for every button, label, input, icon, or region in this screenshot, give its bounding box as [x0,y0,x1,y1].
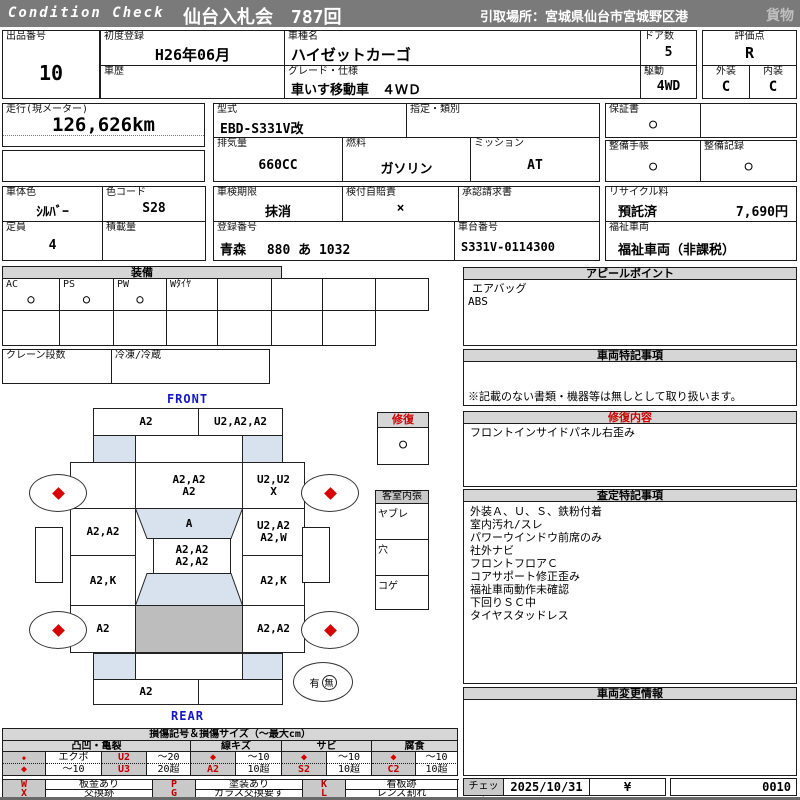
auction-title: 仙台入札会 787回 [183,3,342,29]
damage-legend: 損傷記号＆損傷サイズ（～最大cm） 凸凹・亀裂 線キズ サビ 腐食 ◆ エクボ … [2,728,458,797]
transmission: AT [471,158,599,173]
displacement-cell: 排気量 660CC [213,137,343,182]
mileage: 126,626km [3,114,204,136]
panel-front-corner-right [242,435,283,463]
title-bar: Condition Check 仙台入札会 787回 引取場所：宮城県仙台市宮城… [0,0,800,27]
model-name: ハイゼットカーゴ [291,44,411,65]
panel-rear-bumper-left: A2 [93,679,199,705]
chassis-number-cell: 車台番号 S331V-0114300 [454,221,600,261]
service-book-mark: ○ [606,159,700,174]
equipment-pw-mark: ○ [114,292,166,306]
panel-rear-corner-right [242,653,283,680]
rear-glass-shape [135,573,243,606]
warranty-cell: 保証書 ○ [605,103,701,138]
grade-cell: グレード・仕様 車いす移動車 ４ＷＤ [284,65,641,99]
check-code: 0010 [762,780,791,794]
welfare-cell: 福祉車両 福祉車両（非課税） [605,221,797,261]
equipment-empty-cell [2,310,60,346]
model-code-cell: 型式 EBD-S331V改 [213,103,407,138]
load-cell: 積載量 [102,221,206,261]
auction-sheet: Condition Check 仙台入札会 787回 引取場所：宮城県仙台市宮城… [0,0,800,800]
equipment-empty-cell [113,310,167,346]
equipment-ac-cell: AC ○ [2,278,60,311]
check-mark: ¥ [590,780,665,794]
panel-hood: A2,A2 A2 [135,462,243,509]
pickup-location: 引取場所：宮城県仙台市宮城野区港 [480,6,688,25]
color-code-cell: 色コード S28 [102,186,206,222]
assessment-line: パワーウインドウ前席のみ [470,531,602,544]
assessment-line: 室内汚れ/スレ [470,518,543,531]
lot-number-cell: 出品番号 10 [2,30,100,99]
wheel-rear-right [301,611,359,649]
damage-diamond-icon [52,487,65,500]
insurance-cell: 検付自賠責 × [342,186,459,222]
legend-group-corrosion: 腐食 [372,741,458,752]
equipment-empty-cell [271,278,323,311]
panel-door-left: A2,A2 [70,508,136,556]
spare-absent-circled: 無 [322,675,337,690]
panel-rear-bumper-right [198,679,283,705]
panel-quarter-left: A2,K [70,555,136,606]
chassis-number: S331V-0114300 [461,240,555,254]
check-date-cell: 2025/10/31 [503,778,590,796]
service-record-mark: ○ [701,159,796,174]
recycle-fee-cell: リサイクル料 預託済 7,690円 [605,186,797,222]
equipment-empty-cell [375,278,429,311]
shaken: 抹消 [214,201,342,220]
panel-front-corner-left [93,435,136,463]
appeal-line: エアバッグ [472,282,527,295]
assessment-line: 外装Ａ、Ｕ、Ｓ、鉄粉付着 [470,505,602,518]
legend-group-dent: 凸凹・亀裂 [3,741,191,752]
warranty-empty-cell [700,103,797,138]
front-label: FRONT [70,392,305,406]
color-code: S28 [103,201,205,216]
spare-present-label: 有 [310,675,320,690]
equipment-empty-cell [271,310,323,346]
first-registration-cell: 初度登録 H26年06月 [100,30,285,66]
brand-logo: Condition Check [8,5,164,21]
diamond-icon: ◆ [191,752,236,764]
body-color-cell: 車体色 ｼﾙﾊﾞｰ [2,186,103,222]
panel-quarter-right: A2,K [242,555,305,606]
small-diamond-icon: ◆ [3,752,46,764]
panel-roof: A2,A2 A2,A2 [153,538,231,574]
recycle-status: 預託済 [618,201,657,220]
panel-windshield: A [135,508,243,539]
rear-label: REAR [70,709,305,723]
welfare: 福祉車両（非課税） [618,239,735,258]
appeal-box: エアバッグ ABS [463,279,797,346]
equipment-wtire-cell: Wﾀｲﾔ [166,278,218,311]
assessment-line: 下回りＳＣ中 [470,596,536,609]
appeal-line: ABS [468,295,488,308]
assessment-line: タイヤスタッドレス [470,609,569,622]
repair-flag-box: 修復 ○ [377,412,429,465]
recycle-fee: 7,690円 [736,201,788,220]
equipment-empty-cell [217,278,272,311]
capacity: 4 [3,238,102,253]
model-code: EBD-S331V改 [220,118,303,137]
doors: 5 [641,45,696,60]
registration-number-cell: 登録番号 青森 880 あ 1032 [213,221,455,261]
drive: 4WD [641,79,696,94]
interior-grade-cell: 内装 C [749,65,797,99]
panel-rear-corner-left [93,653,136,680]
exterior-grade-cell: 外装 C [702,65,750,99]
equipment-ac-mark: ○ [3,292,59,306]
score-cell: 評価点 R [702,30,797,66]
change-info-box [463,699,797,776]
crane-cell: クレーン段数 [2,349,112,384]
panel-front-bumper-left: A2 [93,408,199,436]
capacity-cell: 定員 4 [2,221,103,261]
fuel-cell: 燃料 ガソリン [342,137,471,182]
mileage-cell: 走行(現メーター) 126,626km [2,103,205,147]
shaken-cell: 車検期限 抹消 [213,186,343,222]
damage-diamond-icon [52,624,65,637]
repair-info-line: フロントインサイドパネル右歪み [470,426,635,439]
side-rail-left [35,527,63,583]
service-record-cell: 整備記録 ○ [700,140,797,182]
service-book-cell: 整備手帳 ○ [605,140,701,182]
equipment-pw-cell: PW ○ [113,278,167,311]
warranty-mark: ○ [606,117,700,132]
fuel: ガソリン [343,158,470,177]
wheel-front-right [301,474,359,512]
damage-diamond-icon [324,487,337,500]
panel-door-right: U2,A2 A2,W [242,508,305,556]
diamond-icon: ◆ [282,752,327,764]
panel-cargo-floor [135,605,243,653]
equipment-empty-cell [322,278,376,311]
interior-grade: C [750,79,796,95]
equipment-ps-cell: PS ○ [59,278,114,311]
assessment-line: 社外ナビ [470,544,514,557]
model-name-cell: 車種名 ハイゼットカーゴ [284,30,641,66]
vehicle-category: 貨物 [766,5,794,25]
grade: 車いす移動車 ４ＷＤ [291,79,421,98]
class-cell: 指定・類別 [406,103,600,138]
equipment-empty-cell [166,310,218,346]
dotted-divider [3,135,204,136]
diamond-icon: ◆ [3,764,46,776]
repair-flag-mark: ○ [378,428,428,462]
cabin-lining-box: 客室内張 ヤブレ 穴 コゲ [375,490,429,610]
insurance-mark: × [343,201,458,216]
diamond-icon: ◆ [372,752,416,764]
spare-tire-indicator: 有 無 [293,662,353,702]
repair-info-box: フロントインサイドパネル右歪み [463,423,797,487]
assessment-line: コアサポート修正歪み [470,570,580,583]
legend-title: 損傷記号＆損傷サイズ（～最大cm） [3,729,458,741]
equipment-empty-cell [217,310,272,346]
lining-row-hole: 穴 [376,540,428,576]
check-mark-cell: ¥ [589,778,666,796]
displacement: 660CC [214,158,342,173]
drive-cell: 駆動 4WD [640,65,697,99]
equipment-empty-cell [59,310,114,346]
side-rail-right [302,527,330,583]
panel-rear-right: A2,A2 [242,605,305,653]
assessment-box: 外装Ａ、Ｕ、Ｓ、鉄粉付着 室内汚れ/スレ パワーウインドウ前席のみ 社外ナビ フ… [463,501,797,684]
damage-diamond-icon [324,624,337,637]
wheel-rear-left [29,611,87,649]
check-label-cell: チェック [463,778,504,796]
history-cell: 車歴 [100,65,285,99]
equipment-ps-mark: ○ [60,292,113,306]
panel-front-fender-right: U2,U2 X [242,462,305,509]
assessment-line: フロントフロアＣ [470,557,558,570]
score: R [703,44,796,62]
equipment-empty-cell [322,310,376,346]
car-damage-diagram: FRONT A2 U2,A2,A2 A2,A2 A2 U2,U2 X A2,A2… [0,390,362,730]
mileage-empty-cell [2,150,205,182]
check-date: 2025/10/31 [504,780,589,794]
lining-row-tear: ヤブレ [376,504,428,540]
exterior-grade: C [703,79,749,95]
fridge-cell: 冷凍/冷蔵 [111,349,270,384]
legend-group-scratch: 線キズ [191,741,282,752]
special-notes-box: ※記載のない書類・機器等は無しとして取り扱います。 [463,361,797,406]
body-color: ｼﾙﾊﾞｰ [3,201,102,220]
check-code-cell: 0010 [670,778,797,796]
lining-row-burn: コゲ [376,576,428,610]
approval-cell: 承認請求書 [458,186,600,222]
doors-cell: ドア数 5 [640,30,697,66]
panel-front-bumper-right: U2,A2,A2 [198,408,283,436]
panel-rear-center [135,653,243,680]
legend-group-rust: サビ [282,741,372,752]
panel-front-center [135,435,243,463]
first-registration: H26年06月 [101,44,284,65]
wheel-front-left [29,474,87,512]
registration-number: 青森 880 あ 1032 [220,239,350,258]
transmission-cell: ミッション AT [470,137,600,182]
assessment-line: 福祉車両動作未確認 [470,583,569,596]
special-notes-footnote: ※記載のない書類・機器等は無しとして取り扱います。 [468,390,742,403]
lot-number: 10 [3,61,99,85]
